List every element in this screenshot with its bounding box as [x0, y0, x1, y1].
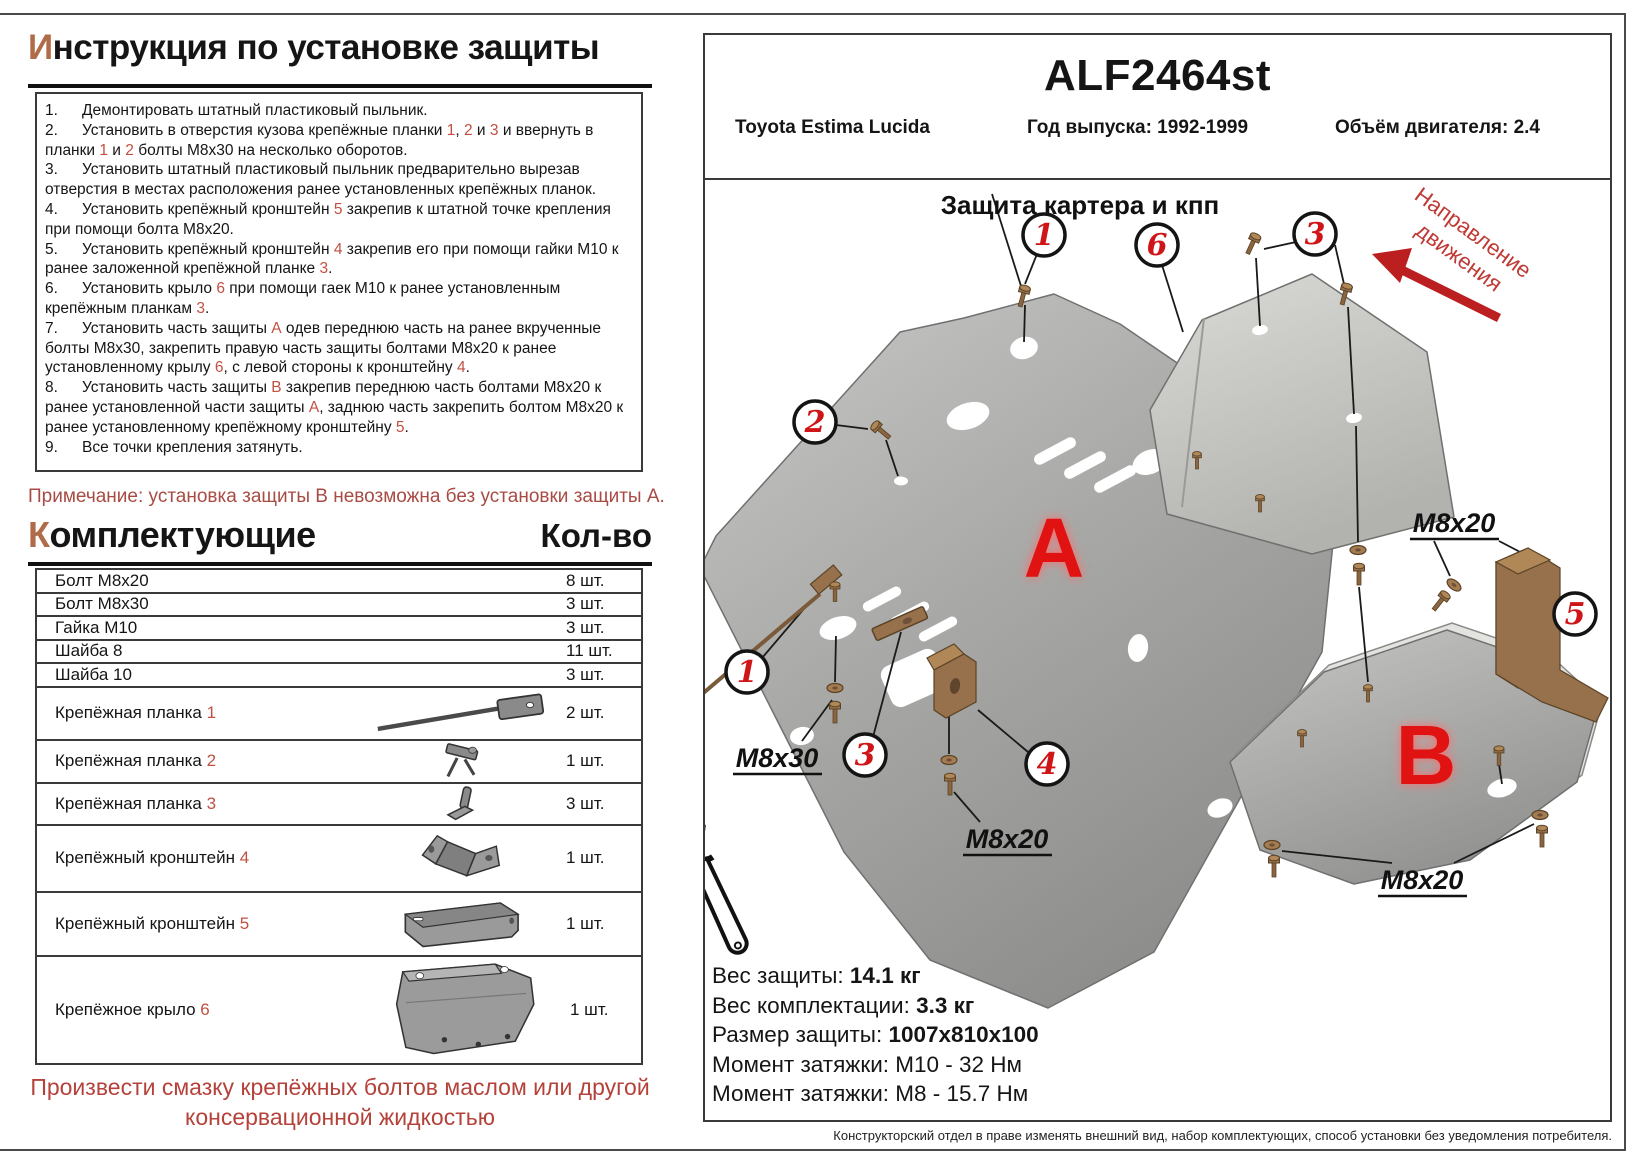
- text-segment: .: [328, 260, 332, 277]
- text-segment: Гайка М10: [55, 618, 137, 637]
- instruction-item: 3.Установить штатный пластиковый пыльник…: [45, 160, 631, 200]
- callout-6: 6: [1136, 224, 1178, 266]
- table-row: Крепёжный кронштейн 4 1 шт.: [37, 826, 641, 893]
- part-ref: 6: [215, 359, 224, 376]
- spec-value: 3.3 кг: [916, 993, 974, 1018]
- fender6-icon: [355, 958, 570, 1062]
- components-title: Комплектующие: [28, 514, 316, 556]
- lubrication-note-line: Произвести смазку крепёжных болтов масло…: [28, 1072, 652, 1102]
- text-segment: Болт М8х30: [55, 594, 149, 613]
- part-ref: 6: [216, 280, 225, 297]
- label-m8x30: М8х30: [736, 743, 819, 773]
- plank1-rod-icon: [361, 690, 561, 736]
- part-ref: 2: [207, 751, 216, 770]
- text-segment: Болт М8х20: [55, 571, 149, 590]
- instruction-item: 7.Установить часть защиты А одев передню…: [45, 319, 631, 378]
- part-name: Шайба 8: [37, 641, 355, 661]
- part-qty: 8 шт.: [566, 571, 641, 591]
- product-header-box: ALF2464st Toyota Estima Lucida Год выпус…: [703, 33, 1612, 180]
- svg-text:4: 4: [1037, 747, 1058, 782]
- instruction-sheet: Инструкция по установке защиты 1.Демонти…: [0, 0, 1642, 1168]
- text-segment: Установить часть защиты: [82, 379, 271, 396]
- label-m8x20-bottom-mid: М8х20: [966, 824, 1049, 854]
- text-segment: .: [466, 359, 470, 376]
- instruction-number: 2.: [45, 121, 82, 141]
- footer-disclaimer: Конструкторский отдел в праве изменять в…: [703, 1128, 1612, 1143]
- text-segment: .: [205, 300, 209, 317]
- part-qty: 1 шт.: [566, 751, 641, 771]
- table-row: Гайка М103 шт.: [37, 617, 641, 641]
- title-rest: нструкция по установке защиты: [53, 28, 599, 67]
- part-ref: 4: [240, 848, 249, 867]
- part-name: Крепёжное крыло 6: [37, 1000, 355, 1020]
- table-row: Шайба 811 шт.: [37, 641, 641, 665]
- text-segment: болты М8х30 на несколько оборотов.: [134, 142, 408, 159]
- text-segment: Крепёжная планка: [55, 794, 207, 813]
- instruction-number: 6.: [45, 279, 82, 299]
- components-underline: [28, 562, 652, 566]
- plank2-icon: [430, 741, 492, 781]
- part-name: Крепёжная планка 1: [37, 703, 355, 723]
- qty-column-header: Кол-во: [541, 517, 652, 555]
- part-ref: 3: [196, 300, 205, 317]
- text-segment: Крепёжная планка: [55, 751, 207, 770]
- text-segment: Крепёжный кронштейн: [55, 914, 240, 933]
- part-qty: 3 шт.: [566, 794, 641, 814]
- instructions-box: 1.Демонтировать штатный пластиковый пыль…: [35, 92, 643, 472]
- instruction-item: 2.Установить в отверстия кузова крепёжны…: [45, 121, 631, 161]
- callout-4: 4: [1026, 743, 1068, 785]
- part-qty: 1 шт.: [566, 914, 641, 934]
- bottom-border: [0, 1149, 1626, 1151]
- text-segment: Демонтировать штатный пластиковый пыльни…: [82, 102, 428, 119]
- part-name: Шайба 10: [37, 665, 355, 685]
- vehicle-years: Год выпуска: 1992-1999: [987, 117, 1289, 139]
- table-row: Крепёжный кронштейн 5 1 шт.: [37, 893, 641, 957]
- lubrication-note-line: консервационной жидкостью: [28, 1102, 652, 1132]
- svg-text:1: 1: [1034, 218, 1055, 253]
- callout-1-left: 1: [726, 651, 768, 693]
- text-segment: Установить крыло: [82, 280, 216, 297]
- instruction-item: 4.Установить крепёжный кронштейн 5 закре…: [45, 200, 631, 240]
- spec-label: Момент затяжки:: [712, 1081, 895, 1106]
- spec-value: М10 - 32 Нм: [895, 1052, 1022, 1077]
- part-ref: 3: [490, 122, 499, 139]
- text-segment: .: [405, 419, 409, 436]
- bracket4-icon: [403, 827, 518, 889]
- part-image-cell: [355, 784, 566, 824]
- text-segment: ,: [455, 122, 464, 139]
- part-qty: 11 шт.: [566, 641, 641, 661]
- text-segment: Установить часть защиты: [82, 320, 271, 337]
- part-ref: А: [271, 320, 281, 337]
- spec-label: Вес защиты:: [712, 963, 850, 988]
- instruction-item: 1.Демонтировать штатный пластиковый пыль…: [45, 101, 631, 121]
- plate-a-label: A: [1024, 501, 1085, 595]
- parts-table: Болт М8х208 шт.Болт М8х303 шт.Гайка М103…: [35, 568, 643, 1065]
- part-name: Гайка М10: [37, 618, 355, 638]
- engine-volume: Объём двигателя: 2.4: [1288, 117, 1540, 139]
- title-first-letter: И: [28, 28, 53, 67]
- callout-1-top: 1: [1023, 214, 1065, 256]
- part-name: Крепёжный кронштейн 4: [37, 848, 355, 868]
- vehicle-info-row: Toyota Estima Lucida Год выпуска: 1992-1…: [705, 117, 1610, 139]
- text-segment: Установить крепёжный кронштейн: [82, 201, 334, 218]
- table-row: Крепёжная планка 3 3 шт.: [37, 784, 641, 826]
- part-image-cell: [355, 690, 566, 736]
- svg-text:6: 6: [1147, 228, 1168, 263]
- part-ref: 3: [319, 260, 328, 277]
- product-code: ALF2464st: [705, 51, 1610, 101]
- part-ref: 5: [240, 914, 249, 933]
- text-segment: Установить крепёжный кронштейн: [82, 241, 334, 258]
- label-m8x20-bottom-right: М8х20: [1381, 865, 1464, 895]
- instruction-number: 3.: [45, 160, 82, 180]
- table-row: Крепёжное крыло 6 1 шт.: [37, 957, 641, 1063]
- callout-3-bottom: 3: [844, 734, 886, 776]
- text-segment: Крепёжная планка: [55, 703, 207, 722]
- instruction-number: 4.: [45, 200, 82, 220]
- text-segment: , с левой стороны к кронштейну: [224, 359, 457, 376]
- lubrication-note: Произвести смазку крепёжных болтов масло…: [28, 1072, 652, 1132]
- plate-b-label: B: [1396, 708, 1457, 802]
- page-title: Инструкция по установке защиты: [28, 28, 653, 68]
- part-ref: 6: [200, 1000, 209, 1019]
- plank3-icon: [436, 784, 486, 824]
- table-row: Болт М8х303 шт.: [37, 594, 641, 618]
- part-qty: 1 шт.: [566, 848, 641, 868]
- text-segment: Крепёжный кронштейн: [55, 848, 240, 867]
- spec-value: 14.1 кг: [850, 963, 921, 988]
- callout-2: 2: [794, 401, 836, 443]
- title-underline: [28, 84, 652, 88]
- instruction-number: 7.: [45, 319, 82, 339]
- spec-label: Момент затяжки:: [712, 1052, 895, 1077]
- text-segment: Крепёжное крыло: [55, 1000, 200, 1019]
- spec-label: Вес комплектации:: [712, 993, 916, 1018]
- part-qty: 2 шт.: [566, 703, 641, 723]
- components-title-rest: омплектующие: [49, 514, 315, 555]
- bracket5-icon: [378, 895, 543, 953]
- part-qty: 3 шт.: [566, 594, 641, 614]
- part-ref: 2: [464, 122, 473, 139]
- part-image-cell: [355, 958, 570, 1062]
- text-segment: и: [108, 142, 125, 159]
- part-qty: 1 шт.: [570, 1000, 645, 1020]
- table-row: Крепёжная планка 1 2 шт.: [37, 688, 641, 741]
- table-row: Болт М8х208 шт.: [37, 570, 641, 594]
- part-ref: 3: [207, 794, 216, 813]
- part-ref: 1: [99, 142, 108, 159]
- label-m8x20-top-right: М8х20: [1413, 508, 1496, 538]
- instruction-item: 5.Установить крепёжный кронштейн 4 закре…: [45, 240, 631, 280]
- part-name: Крепёжный кронштейн 5: [37, 914, 355, 934]
- svg-text:3: 3: [855, 738, 876, 773]
- spec-label: Размер защиты:: [712, 1022, 888, 1047]
- direction-text: Направление движения: [1394, 182, 1541, 309]
- fender-plate: [1150, 274, 1454, 554]
- specs-block: Вес защиты: 14.1 кгВес комплектации: 3.3…: [712, 961, 1039, 1109]
- instruction-number: 1.: [45, 101, 82, 121]
- svg-text:3: 3: [1305, 217, 1326, 252]
- text-segment: Все точки крепления затянуть.: [82, 439, 303, 456]
- text-segment: Установить в отверстия кузова крепёжные …: [82, 122, 447, 139]
- text-segment: Шайба 10: [55, 665, 132, 684]
- instructions-list: 1.Демонтировать штатный пластиковый пыль…: [45, 101, 631, 457]
- instruction-item: 9.Все точки крепления затянуть.: [45, 438, 631, 458]
- callout-5: 5: [1554, 593, 1596, 635]
- part-image-cell: [355, 827, 566, 889]
- diagram-title: Защита картера и кпп: [941, 190, 1219, 220]
- spec-row: Момент затяжки: М8 - 15.7 Нм: [712, 1079, 1039, 1109]
- table-row: Шайба 103 шт.: [37, 664, 641, 688]
- svg-text:5: 5: [1565, 597, 1586, 632]
- part-ref: В: [271, 379, 281, 396]
- part-name: Крепёжная планка 3: [37, 794, 355, 814]
- text-segment: и: [473, 122, 490, 139]
- part-image-cell: [355, 741, 566, 781]
- spec-row: Момент затяжки: М10 - 32 Нм: [712, 1050, 1039, 1080]
- spec-row: Вес комплектации: 3.3 кг: [712, 991, 1039, 1021]
- spec-value: М8 - 15.7 Нм: [895, 1081, 1028, 1106]
- part-ref: 2: [125, 142, 134, 159]
- right-border: [1624, 13, 1626, 1151]
- instruction-number: 9.: [45, 438, 82, 458]
- note-text: Примечание: установка защиты В невозможн…: [28, 486, 658, 508]
- part-qty: 3 шт.: [566, 665, 641, 685]
- top-border: [0, 13, 1626, 15]
- part-name: Болт М8х30: [37, 594, 355, 614]
- vehicle-model: Toyota Estima Lucida: [735, 117, 987, 139]
- components-header-row: Комплектующие Кол-во: [28, 514, 652, 556]
- part-name: Болт М8х20: [37, 571, 355, 591]
- text-segment: Установить штатный пластиковый пыльник п…: [45, 161, 596, 198]
- part-image-cell: [355, 895, 566, 953]
- direction-arrow: Направление движения: [1372, 182, 1541, 318]
- instruction-number: 8.: [45, 378, 82, 398]
- instruction-item: 6.Установить крыло 6 при помощи гаек М10…: [45, 279, 631, 319]
- instruction-item: 8.Установить часть защиты В закрепив пер…: [45, 378, 631, 437]
- spec-value: 1007x810x100: [888, 1022, 1038, 1047]
- svg-text:1: 1: [737, 655, 758, 690]
- part-qty: 3 шт.: [566, 618, 641, 638]
- table-row: Крепёжная планка 2 1 шт.: [37, 741, 641, 784]
- part-ref: 1: [207, 703, 216, 722]
- instruction-number: 5.: [45, 240, 82, 260]
- callout-3-top: 3: [1294, 213, 1336, 255]
- text-segment: Шайба 8: [55, 641, 123, 660]
- part-ref: 5: [396, 419, 405, 436]
- svg-text:2: 2: [804, 405, 826, 440]
- components-first-letter: К: [28, 514, 49, 555]
- spec-row: Размер защиты: 1007x810x100: [712, 1020, 1039, 1050]
- part-ref: А: [309, 399, 319, 416]
- part-name: Крепёжная планка 2: [37, 751, 355, 771]
- wrench-icon: [705, 824, 749, 959]
- part-ref: 4: [457, 359, 466, 376]
- spec-row: Вес защиты: 14.1 кг: [712, 961, 1039, 991]
